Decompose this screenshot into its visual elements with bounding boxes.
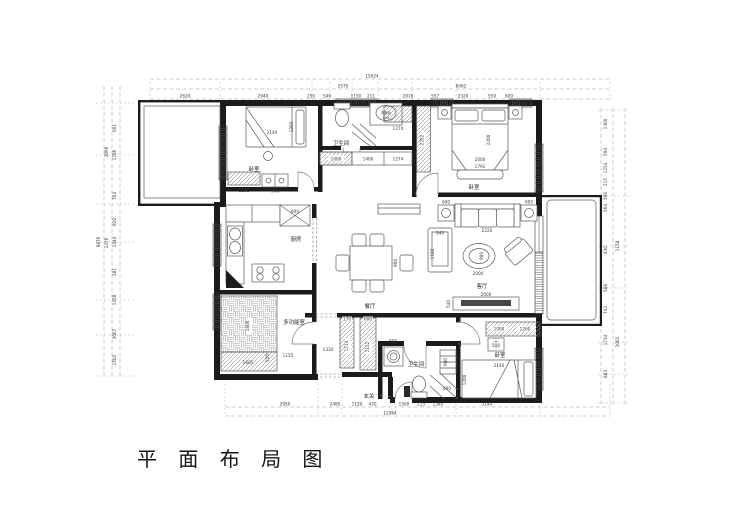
dim-label: 588 [603, 284, 608, 292]
dim-label: 1000 [331, 157, 342, 162]
nightstand-icon [509, 106, 522, 119]
dim-label: 559 [488, 94, 496, 99]
balcony-left-inner [144, 106, 220, 198]
room-label-bathroom: 卫生间 [333, 139, 349, 147]
dim-label: 600 [525, 200, 533, 205]
dim-label: 883 [603, 370, 608, 378]
dim-label: 2320 [458, 94, 469, 99]
dim-label: 1714 [344, 340, 349, 351]
dim-label: 6062 [456, 84, 467, 89]
dim-label: 1350 [289, 121, 294, 132]
dim-label: 1274 [393, 126, 404, 131]
dim-label: 601 [112, 124, 117, 132]
entry-fixture [404, 386, 410, 397]
dim-label: 1458 [112, 294, 117, 305]
room-label-multi: 多功能室 [283, 318, 305, 326]
side-table-icon [438, 205, 454, 221]
dim-label: 900 [271, 189, 279, 194]
side-table-icon [521, 205, 537, 221]
dim-label: 1150 [352, 402, 363, 407]
room-label-bedroom: 卧室 [249, 165, 260, 173]
shower-hatch-icon [352, 124, 376, 146]
dim-label: 170 [343, 317, 351, 322]
dim-label: 557 [431, 94, 439, 99]
dim-label: 2016 [403, 94, 414, 99]
room-label-living: 客厅 [477, 282, 488, 290]
dim-label: 1791 [475, 164, 486, 169]
dim-label: 2000 [481, 292, 492, 297]
dim-label: 211 [367, 94, 375, 99]
tv-console-icon [453, 297, 519, 310]
dim-label: 1400 [363, 157, 374, 162]
door-arc-icon [416, 173, 438, 195]
dim-label: 3140 [482, 402, 493, 407]
dim-label: 2620 [180, 94, 191, 99]
dim-label: 900 [479, 252, 484, 260]
balcony-right-inner [547, 200, 596, 320]
room-label-entry: 玄关 [364, 392, 375, 400]
dim-label: 1180 [430, 248, 435, 259]
dim-label: 250 [307, 94, 315, 99]
dim-label: 2940 [258, 94, 269, 99]
dim-label: 430 [603, 246, 608, 254]
dim-label: 9876 [96, 236, 101, 247]
room-label-bathroom2: 卫生间 [408, 360, 424, 368]
dim-label: 900 [393, 259, 398, 267]
dim-label: 594 [603, 148, 608, 156]
toilet-icon [334, 103, 350, 127]
washbasin-size: 600 [383, 116, 389, 120]
dim-label: 1444 [112, 236, 117, 247]
sofa-icon [455, 204, 520, 227]
toilet-icon [411, 376, 427, 398]
dim-label: 500 [492, 343, 500, 348]
dim-label: 742 [603, 306, 608, 314]
dim-label: 596 [603, 192, 608, 200]
washbasin-label: 洗漱台 [381, 110, 392, 115]
dim-label: 1200 [462, 374, 467, 385]
dim-label: 400 [443, 386, 451, 391]
dim-label: 1734 [603, 334, 608, 345]
dim-label: 3066 [104, 146, 109, 157]
dim-label: 2000 [475, 157, 486, 162]
dim-label: 600 [442, 200, 450, 205]
dim-label: 1800 [245, 320, 250, 331]
dim-label: 2200 [486, 134, 491, 145]
dim-label: 2262 [420, 134, 425, 145]
dim-label: 3067 [112, 328, 117, 339]
dim-label: 546 [323, 94, 331, 99]
dim-label: 1000 [494, 327, 505, 332]
dim-label: 600 [291, 209, 299, 214]
dim-label: 2140 [494, 363, 505, 368]
room-label-kitchen: 厨房 [291, 235, 302, 243]
dim-label: 1502 [112, 354, 117, 365]
dim-label: 764 [112, 192, 117, 200]
window-icon [213, 224, 221, 266]
room-label-bedroom3: 卧室 [495, 351, 506, 359]
hall-console-icon [378, 204, 420, 214]
washing-machine-icon [384, 347, 403, 366]
dim-label: 600 [512, 101, 520, 106]
dim-label: 1152 [365, 341, 370, 352]
bench-icon [457, 170, 503, 179]
door-arc-icon [298, 172, 314, 188]
window-icon [213, 294, 221, 330]
stove-icon [252, 264, 284, 282]
dim-label: 2476 [104, 237, 109, 248]
dim-label: 600 [443, 358, 448, 366]
window-icon [535, 144, 543, 192]
dim-label: 3065 [615, 336, 620, 347]
dim-label: 430 [369, 402, 377, 407]
dim-label: 600 [389, 339, 397, 344]
door-arc-icon [458, 322, 480, 344]
dim-label: 564 [603, 204, 608, 212]
dim-label: 1605 [243, 360, 254, 365]
dining-set-icon [336, 234, 413, 292]
balcony-door-icon [535, 216, 543, 252]
room-label-master-bedroom: 卧室 [469, 183, 480, 191]
dim-label: 1158 [615, 240, 620, 251]
dim-label: 609 [505, 94, 513, 99]
dim-label: 12064 [383, 411, 397, 416]
dim-label: 215 [603, 178, 608, 186]
dim-label: 1300 [603, 118, 608, 129]
bed-icon [246, 107, 306, 147]
dim-label: 550 [265, 354, 270, 362]
dim-label: 1155 [283, 353, 294, 358]
dim-label: 2950 [280, 402, 291, 407]
dim-label: 1150 [351, 94, 362, 99]
window-icon [535, 252, 543, 314]
dim-label: 1274 [393, 157, 404, 162]
dim-label: 1560 [399, 402, 410, 407]
room-label-dining: 餐厅 [365, 302, 376, 310]
stool-icon [264, 152, 273, 161]
dim-label: 2570 [338, 84, 349, 89]
cabinet-icon [262, 174, 288, 187]
dim-label: 600 [364, 317, 372, 322]
dim-label: 920 [112, 218, 117, 226]
armchair-icon [502, 235, 533, 266]
dim-label: 15024 [365, 74, 379, 79]
dim-label: 281 [112, 268, 117, 276]
floor-plan-drawing: 卧室 卫生间 洗漱台 600 卧室 厨房 餐厅 客厅 多功能室 卫生间 卧室 玄… [0, 0, 740, 523]
page-title: 平 面 布 局 图 [137, 447, 330, 471]
dim-label: 1161 [239, 188, 250, 193]
dim-label: 2220 [482, 228, 493, 233]
dim-label: 215 [417, 402, 425, 407]
blueprint-page: 卧室 卫生间 洗漱台 600 卧室 厨房 餐厅 客厅 多功能室 卫生间 卧室 玄… [0, 0, 740, 523]
nightstand-icon [438, 106, 451, 119]
dim-label: 2000 [473, 271, 484, 276]
dim-label: 600 [440, 101, 448, 106]
dim-label: 2480 [330, 402, 341, 407]
dim-label: 1334 [323, 347, 334, 352]
dim-label: 1254 [603, 162, 608, 173]
tv-icon [461, 300, 511, 306]
dim-label: 540 [446, 300, 451, 308]
dim-label: 2140 [267, 130, 278, 135]
dim-label: 940 [436, 231, 444, 236]
dim-label: 1786 [112, 149, 117, 160]
dim-label: 1340 [433, 402, 444, 407]
dim-label: 1260 [520, 327, 531, 332]
wardrobe-icon [228, 172, 260, 185]
